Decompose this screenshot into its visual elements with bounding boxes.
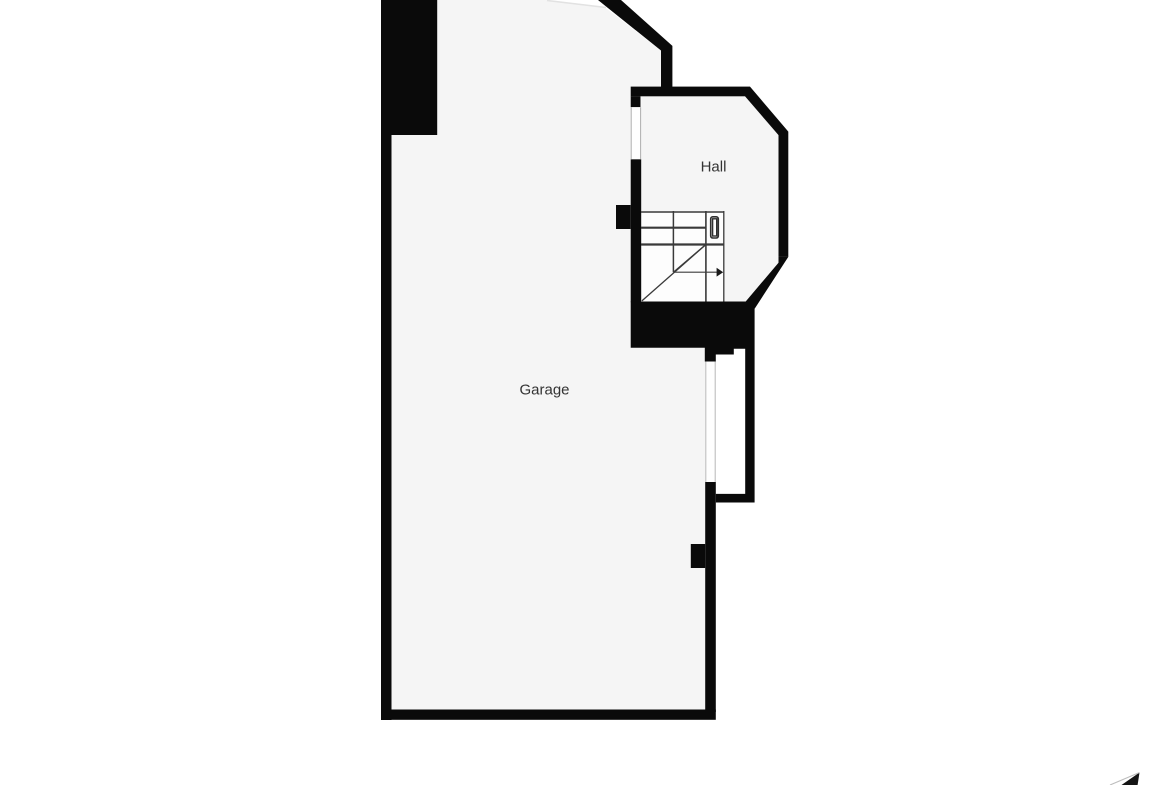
svg-text:Hall: Hall — [701, 159, 727, 176]
svg-text:Garage: Garage — [519, 381, 569, 398]
